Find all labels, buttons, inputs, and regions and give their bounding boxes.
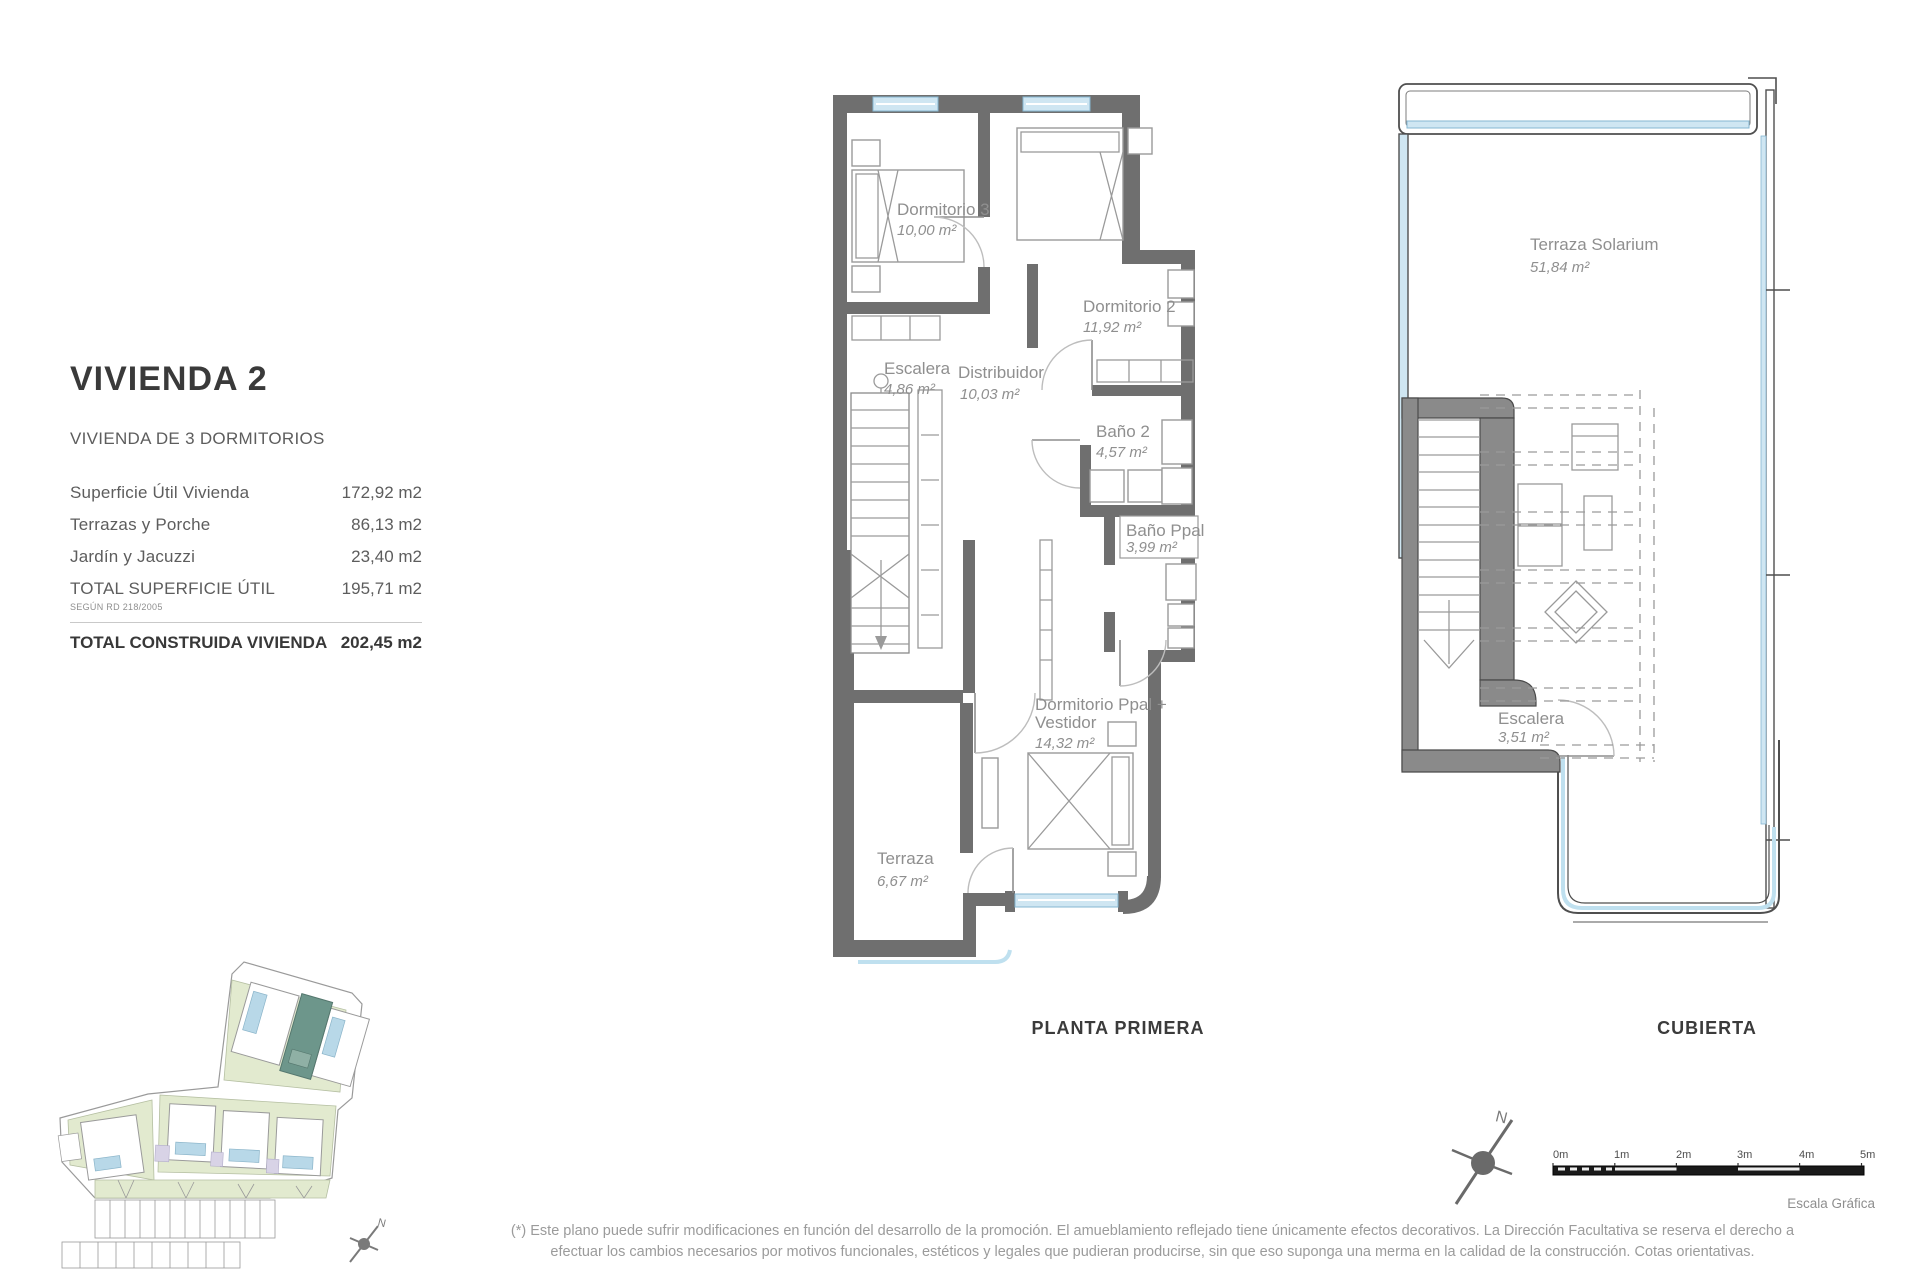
floorplan-sheet: VIVIENDA 2 VIVIENDA DE 3 DORMITORIOS Sup… (0, 0, 1920, 1280)
room-area: 6,67 m² (877, 873, 929, 890)
room-area: 51,84 m² (1530, 259, 1590, 276)
north-label: N (1494, 1108, 1509, 1127)
room-label: Vestidor (1035, 713, 1097, 732)
room-label: Baño Ppal (1126, 521, 1204, 540)
scale-caption: Escala Gráfica (1700, 1196, 1875, 1211)
room-area: 10,03 m² (960, 386, 1020, 403)
room-label: Baño 2 (1096, 422, 1150, 441)
disclaimer: (*) Este plano puede sufrir modificacion… (380, 1221, 1920, 1263)
room-area: 3,51 m² (1498, 729, 1550, 746)
compass-icon: N (1452, 1108, 1512, 1204)
room-area: 3,99 m² (1126, 539, 1178, 556)
room-label: Dormitorio 2 (1083, 297, 1176, 316)
room-area: 4,86 m² (884, 381, 936, 398)
room-label: Escalera (1498, 709, 1565, 728)
room-area: 10,00 m² (897, 222, 957, 239)
scale-tick-label: 4m (1799, 1149, 1814, 1161)
stairs-planta-primera (851, 374, 942, 653)
scale-tick-label: 1m (1614, 1149, 1629, 1161)
disclaimer-line1: (*) Este plano puede sufrir modificacion… (380, 1221, 1920, 1242)
room-area: 4,57 m² (1096, 444, 1148, 461)
scale-tick-label: 0m (1553, 1149, 1568, 1161)
scale-bar: 0m 1m 2m 3m 4m 5m (1553, 1149, 1875, 1175)
room-label: Terraza (877, 849, 934, 868)
room-label: Terraza Solarium (1530, 235, 1659, 254)
room-area: 14,32 m² (1035, 735, 1095, 752)
scale-tick-label: 3m (1737, 1149, 1752, 1161)
room-label: Escalera (884, 359, 951, 378)
scale-tick-label: 2m (1676, 1149, 1691, 1161)
room-label: Dormitorio Ppal + (1035, 695, 1167, 714)
room-label: Dormitorio 3 (897, 200, 990, 219)
room-area: 11,92 m² (1083, 319, 1142, 336)
scale-tick-label: 5m (1860, 1149, 1875, 1161)
disclaimer-line2: efectuar los cambios necesarios por moti… (380, 1242, 1920, 1263)
plan-planta-primera: Dormitorio 3 10,00 m² Dormitorio 2 11,92… (833, 95, 1204, 962)
plans-canvas: Dormitorio 3 10,00 m² Dormitorio 2 11,92… (0, 0, 1920, 1280)
site-plan-minimap: N (57, 962, 387, 1268)
room-label: Distribuidor (958, 363, 1044, 382)
plan-cubierta: Terraza Solarium 51,84 m² Escalera 3,51 … (1399, 78, 1790, 922)
